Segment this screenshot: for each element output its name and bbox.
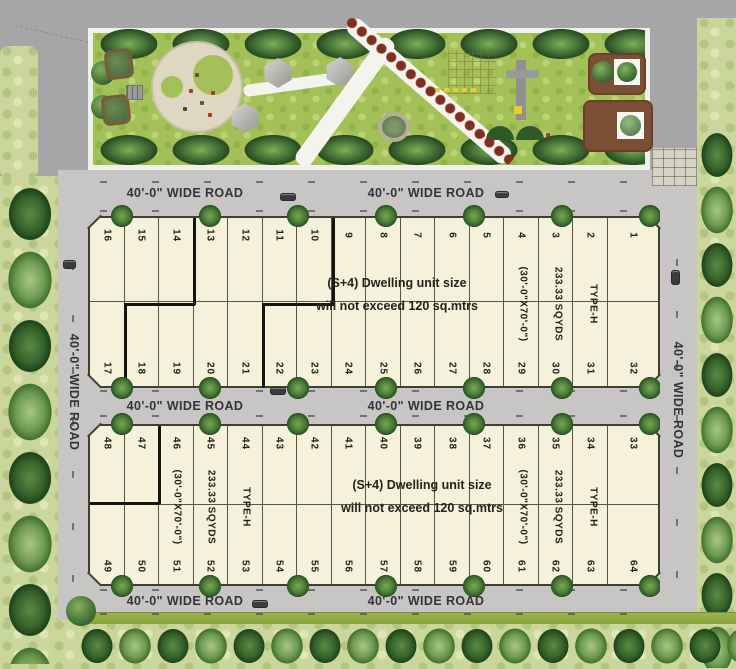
pond-icon <box>103 47 134 80</box>
plot-1: 1 <box>608 218 658 301</box>
yellow-marker-icon <box>514 106 522 114</box>
tree-icon <box>617 62 637 82</box>
tree-icon <box>66 596 96 626</box>
plot-dimension-label: (30'-0"X70'-0") <box>518 266 529 341</box>
road-label-middle-2: 40'-0" WIDE ROAD <box>368 399 485 413</box>
rock-pond-icon <box>378 112 410 142</box>
play-equipment-dot <box>211 91 215 95</box>
shrub-dot <box>546 133 550 137</box>
lawn-circle <box>161 76 183 98</box>
plot-number: 9 <box>343 232 354 239</box>
dwelling-note: (S+4) Dwelling unit size will not exceed… <box>292 276 502 313</box>
paved-parking-strip-icon <box>652 148 697 186</box>
road-label-left: 40'-0" WIDE ROAD <box>67 334 81 451</box>
car-icon <box>270 387 286 395</box>
plot-number: 39 <box>412 437 423 450</box>
car-icon <box>495 191 509 198</box>
plot-number: 41 <box>343 437 354 450</box>
bush-row-icon <box>88 202 660 230</box>
tree-icon <box>620 115 641 136</box>
plot-number: 3 <box>550 232 561 239</box>
play-equipment-dot <box>200 101 204 105</box>
plot-15: 15 <box>125 218 160 301</box>
hedge-arc-icon <box>516 126 544 140</box>
play-equipment-dot <box>195 73 199 77</box>
planter-icon <box>588 53 646 95</box>
plot-number: 6 <box>446 232 457 239</box>
plot-number: 13 <box>205 229 216 242</box>
plot-number: 37 <box>481 437 492 450</box>
car-icon <box>280 193 296 201</box>
road-label-bottom-2: 40'-0" WIDE ROAD <box>368 594 485 608</box>
planter-box <box>617 112 644 139</box>
play-plaza-icon <box>151 41 243 133</box>
road-label-right: 40'-0" WIDE ROAD <box>671 342 685 459</box>
plot-13: 13 <box>194 218 229 301</box>
phase-boundary-line <box>90 502 160 505</box>
dwelling-note-line1: (S+4) Dwelling unit size <box>312 478 532 492</box>
plot-number: 38 <box>446 437 457 450</box>
plot-number: 47 <box>136 437 147 450</box>
plot-number: 15 <box>136 229 147 242</box>
plot-number: 4 <box>515 232 526 239</box>
road-label-bottom-1: 40'-0" WIDE ROAD <box>127 594 244 608</box>
play-equipment-dot <box>189 89 193 93</box>
plot-12: 12 <box>228 218 263 301</box>
boundary-dashed-line <box>15 25 93 44</box>
plot-number: 42 <box>308 437 319 450</box>
car-icon <box>252 600 268 608</box>
top-left-grass-patch <box>0 46 38 178</box>
site-layout-plan: 40'-0" WIDE ROAD 40'-0" WIDE ROAD 40'-0"… <box>0 0 736 669</box>
bush-row-icon <box>88 410 660 438</box>
dwelling-note: (S+4) Dwelling unit size will not exceed… <box>312 478 532 515</box>
road-label-top-1: 40'-0" WIDE ROAD <box>127 186 244 200</box>
car-icon <box>671 270 680 285</box>
paved-court-icon <box>126 85 143 100</box>
tree-row-bottom-icon <box>78 625 736 667</box>
park-block <box>88 28 650 170</box>
park-tree-row-bottom-icon <box>93 131 645 169</box>
plot-16: 16 <box>90 218 125 301</box>
play-equipment-dot <box>208 113 212 117</box>
road-label-middle-1: 40'-0" WIDE ROAD <box>127 399 244 413</box>
plot-number: 5 <box>481 232 492 239</box>
plot-type-label: TYPE-H <box>588 487 599 527</box>
tree-row-right-icon <box>698 128 736 668</box>
phase-boundary-line <box>124 303 195 306</box>
dwelling-note-line2: will not exceed 120 sq.mtrs <box>292 299 502 313</box>
plot-area-label: 233.33 SQYDS <box>553 470 564 544</box>
road-label-top-2: 40'-0" WIDE ROAD <box>368 186 485 200</box>
plot-block-top: 16151413121110987654321 1718192021222324… <box>88 216 660 388</box>
plot-number: 35 <box>550 437 561 450</box>
lawn-circle <box>193 55 233 95</box>
fountain-arm-icon <box>506 70 538 78</box>
play-equipment-dot <box>183 107 187 111</box>
bush-row-icon <box>88 374 660 402</box>
planter-icon <box>583 100 653 152</box>
plot-number: 16 <box>101 229 112 242</box>
plot-type-label: TYPE-H <box>588 284 599 324</box>
plot-number: 7 <box>412 232 423 239</box>
plot-type-label: TYPE-H <box>241 487 252 527</box>
plot-number: 40 <box>377 437 388 450</box>
plot-number: 14 <box>170 229 181 242</box>
plot-number: 12 <box>239 229 250 242</box>
plot-number: 10 <box>308 229 319 242</box>
plot-number: 36 <box>515 437 526 450</box>
tree-row-left-icon <box>4 182 56 664</box>
dwelling-note-line2: will not exceed 120 sq.mtrs <box>312 501 532 515</box>
plot-14: 14 <box>159 218 194 301</box>
plot-area-label: 233.33 SQYDS <box>206 470 217 544</box>
plot-number: 43 <box>274 437 285 450</box>
car-icon <box>63 260 76 269</box>
plot-number: 48 <box>101 437 112 450</box>
plot-block-bottom: 48474645444342414039383736353433 4950515… <box>88 424 660 586</box>
plot-number: 33 <box>627 437 638 450</box>
plot-number: 34 <box>584 437 595 450</box>
plot-dimension-label: (30'-0"X70'-0") <box>172 469 183 544</box>
plot-number: 1 <box>627 232 638 239</box>
lane-marks <box>100 613 652 615</box>
lane-marks <box>100 181 652 183</box>
planter-box <box>614 59 640 85</box>
plot-number: 2 <box>584 232 595 239</box>
dwelling-note-line1: (S+4) Dwelling unit size <box>292 276 502 290</box>
tree-icon <box>592 61 614 83</box>
plot-number: 44 <box>239 437 250 450</box>
plot-area-label: 233.33 SQYDS <box>553 267 564 341</box>
plot-number: 45 <box>205 437 216 450</box>
plot-number: 46 <box>170 437 181 450</box>
plot-number: 11 <box>274 229 285 242</box>
plot-number: 8 <box>377 232 388 239</box>
phase-boundary-line <box>193 218 196 305</box>
